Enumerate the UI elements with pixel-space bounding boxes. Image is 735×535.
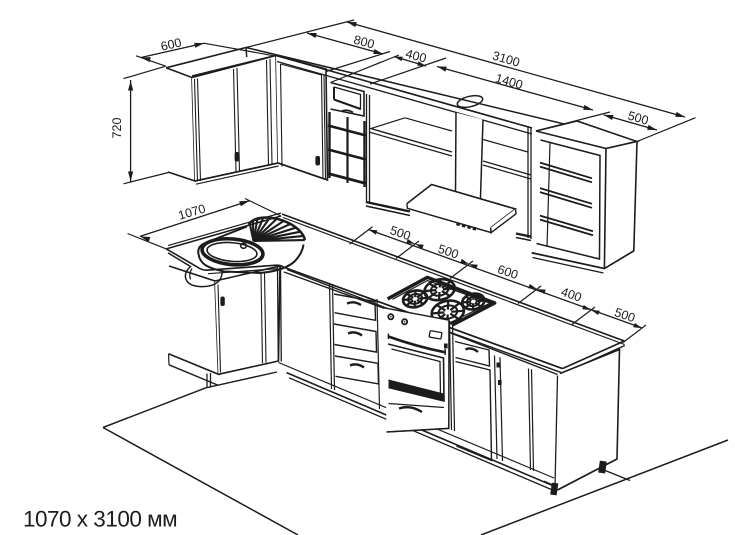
svg-text:1070 x 3100 мм: 1070 x 3100 мм xyxy=(23,507,177,532)
svg-text:720: 720 xyxy=(110,118,124,139)
